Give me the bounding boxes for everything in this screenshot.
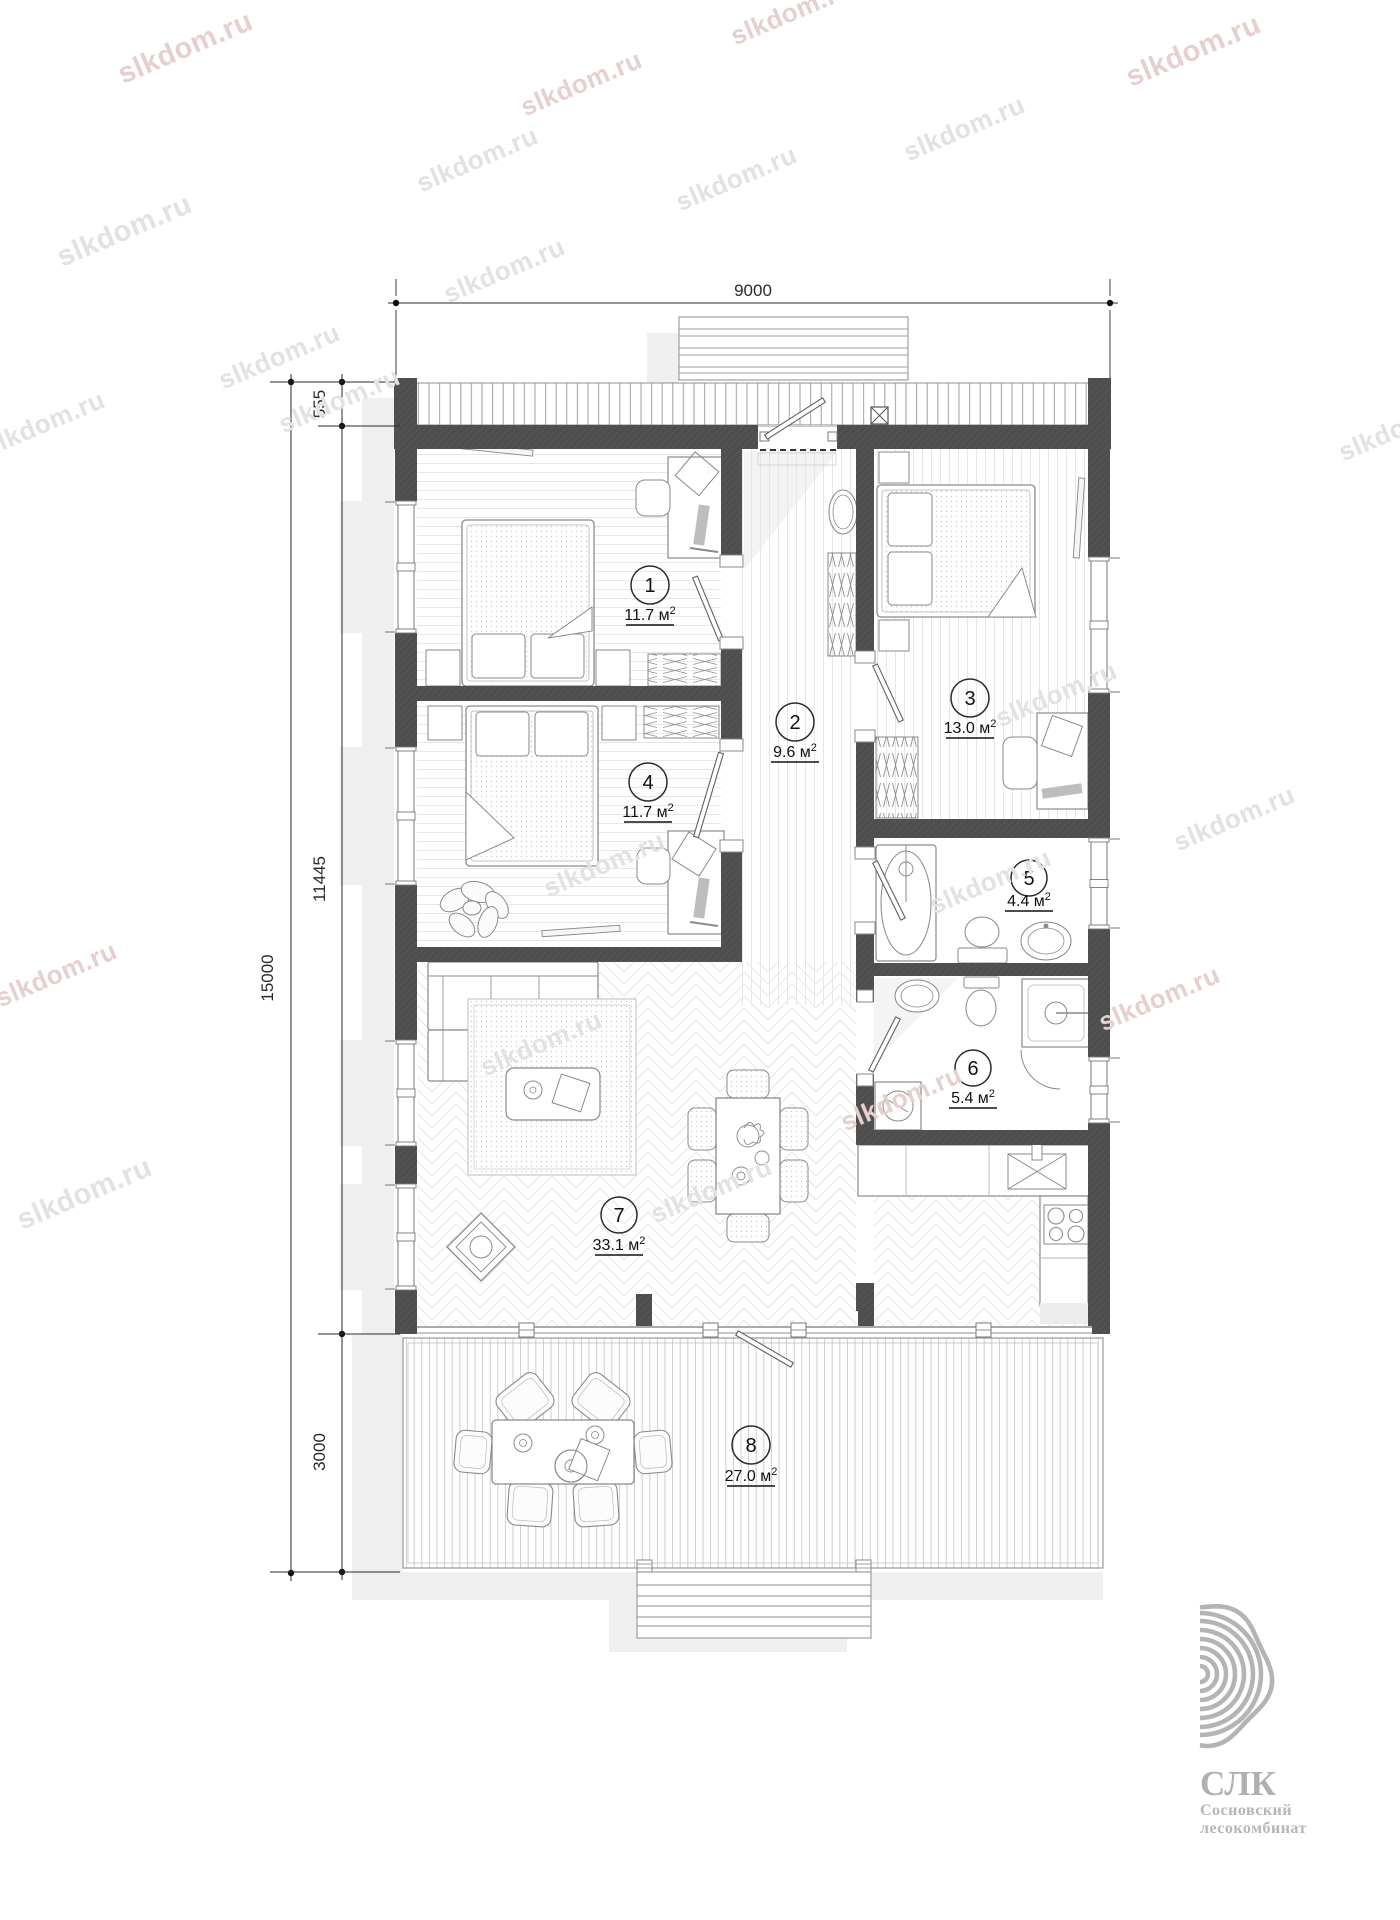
- svg-text:15000: 15000: [258, 954, 277, 1001]
- svg-text:4: 4: [642, 772, 653, 794]
- svg-text:4.4 м2: 4.4 м2: [1007, 891, 1051, 910]
- svg-text:13.0 м2: 13.0 м2: [944, 718, 997, 737]
- svg-text:5.4 м2: 5.4 м2: [951, 1088, 995, 1107]
- svg-text:3: 3: [964, 688, 975, 710]
- svg-text:9000: 9000: [734, 281, 772, 300]
- svg-text:7: 7: [613, 1205, 624, 1227]
- svg-text:27.0 м2: 27.0 м2: [725, 1466, 778, 1485]
- svg-text:9.6 м2: 9.6 м2: [773, 742, 817, 761]
- svg-text:Сосновский: Сосновский: [1200, 1802, 1292, 1819]
- svg-text:6: 6: [967, 1058, 978, 1080]
- svg-text:лесокомбинат: лесокомбинат: [1200, 1820, 1307, 1837]
- svg-text:33.1 м2: 33.1 м2: [593, 1235, 646, 1254]
- svg-text:1: 1: [644, 575, 655, 597]
- svg-text:2: 2: [789, 712, 800, 734]
- svg-text:11445: 11445: [310, 856, 329, 902]
- svg-text:8: 8: [745, 1435, 756, 1457]
- svg-text:11.7 м2: 11.7 м2: [622, 802, 674, 821]
- svg-text:11.7 м2: 11.7 м2: [624, 605, 676, 624]
- svg-text:3000: 3000: [310, 1433, 329, 1471]
- svg-text:СЛК: СЛК: [1200, 1764, 1276, 1803]
